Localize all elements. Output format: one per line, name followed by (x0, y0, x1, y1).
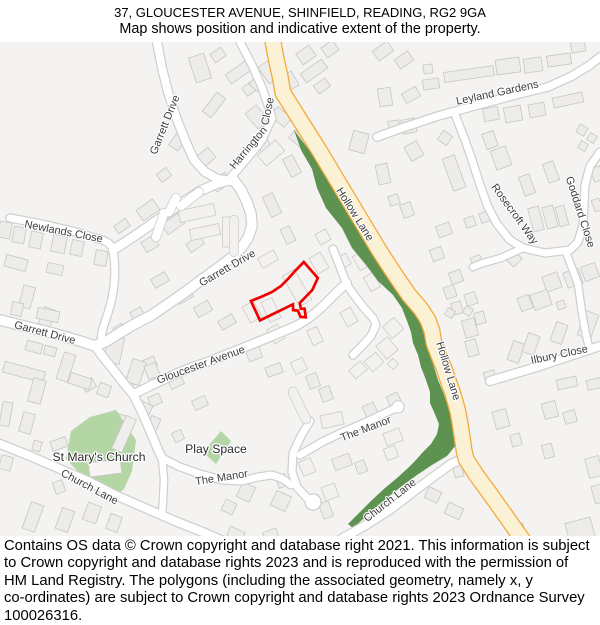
svg-text:Play Space: Play Space (185, 442, 247, 456)
svg-text:St Mary's Church: St Mary's Church (52, 450, 145, 464)
